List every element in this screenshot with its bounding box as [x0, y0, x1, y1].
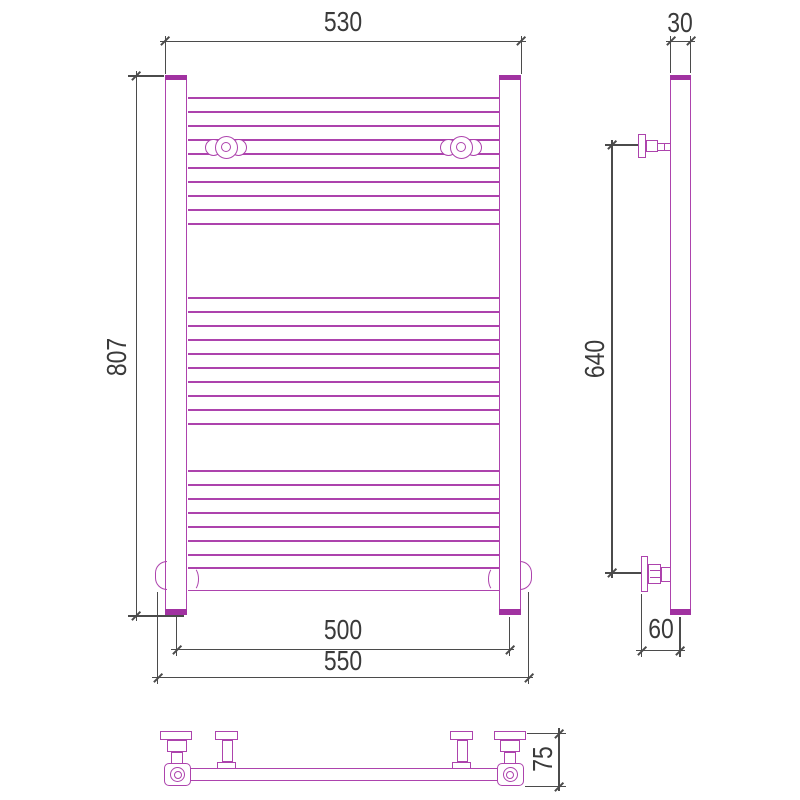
radiator-rung: [188, 540, 499, 542]
plan-bracket-stem: [222, 740, 233, 762]
radiator-rung: [188, 167, 499, 169]
radiator-rung: [188, 111, 499, 113]
right-post-bottom-cap: [499, 609, 521, 615]
extension-line: [528, 592, 529, 684]
dim-label-60: 60: [636, 614, 685, 644]
dimension-line: [136, 71, 137, 621]
wall-bracket-hole-icon: [221, 142, 231, 152]
radiator-rung: [188, 297, 499, 299]
radiator-rung: [188, 223, 499, 225]
radiator-rung: [188, 395, 499, 397]
radiator-rung: [188, 181, 499, 183]
drawing-canvas: 530 807 500 550 30: [0, 0, 800, 800]
plan-bracket-cap: [160, 731, 192, 740]
left-post: [165, 75, 187, 615]
dim-label-500: 500: [310, 615, 376, 645]
upper-bracket-body: [646, 140, 658, 152]
dimension-line: [152, 677, 533, 678]
collector-inner-cap-left: [186, 567, 199, 591]
lower-bracket-flange: [641, 556, 648, 592]
plan-bracket-mid: [500, 740, 520, 752]
radiator-rung: [188, 470, 499, 472]
right-post-top-cap: [499, 75, 521, 80]
left-post-bottom-cap: [165, 609, 187, 615]
lower-bracket-hex-nut: [648, 564, 661, 584]
dim-label-75: 75: [528, 734, 558, 783]
radiator-rung: [188, 195, 499, 197]
left-post-top-cap: [165, 75, 187, 80]
radiator-rung: [188, 353, 499, 355]
upper-bracket-flange: [638, 134, 646, 158]
dim-label-640: 640: [580, 326, 610, 392]
radiator-rung: [188, 97, 499, 99]
dimension-line: [558, 728, 559, 791]
plan-bracket-cap: [494, 731, 526, 740]
plan-bracket-stem: [457, 740, 468, 762]
fitting-plug-icon: [174, 771, 182, 779]
plan-bracket-cap: [215, 731, 238, 740]
upper-bracket-neck-end: [664, 143, 666, 152]
wall-bracket-hole-icon: [456, 142, 466, 152]
dimension-line: [160, 41, 526, 42]
side-tube-top-cap: [670, 75, 691, 80]
radiator-rung: [188, 409, 499, 411]
radiator-rung: [188, 526, 499, 528]
plan-tube-bottom-line: [191, 780, 497, 782]
plan-bracket-stem: [171, 752, 183, 764]
dim-label-550: 550: [310, 646, 376, 676]
plan-bracket-foot: [217, 762, 236, 769]
collector-top-line: [188, 567, 499, 569]
hex-facet-line: [650, 577, 660, 578]
fitting-plug-icon: [506, 771, 514, 779]
radiator-rung: [188, 209, 499, 211]
radiator-rung: [188, 339, 499, 341]
lower-bracket-neck: [661, 567, 671, 583]
collector-inner-cap-right: [488, 567, 501, 591]
radiator-rung: [188, 381, 499, 383]
collector-outer-cap-right: [520, 561, 532, 590]
collector-outer-cap-left: [155, 561, 167, 590]
radiator-rung: [188, 125, 499, 127]
plan-bracket-foot: [452, 762, 471, 769]
radiator-rung: [188, 311, 499, 313]
collector-bottom-line: [188, 590, 499, 592]
plan-bracket-stem: [504, 752, 516, 764]
radiator-rung: [188, 367, 499, 369]
radiator-rung: [188, 554, 499, 556]
dim-label-807: 807: [102, 324, 132, 390]
radiator-rung: [188, 498, 499, 500]
extension-line: [157, 592, 158, 684]
radiator-rung: [188, 423, 499, 425]
dim-label-30: 30: [655, 8, 704, 38]
dimension-line: [611, 140, 612, 578]
plan-bracket-cap: [450, 731, 473, 740]
hex-facet-line: [650, 570, 660, 571]
radiator-rung: [188, 512, 499, 514]
plan-bracket-mid: [167, 740, 187, 752]
radiator-rung: [188, 484, 499, 486]
radiator-rung: [188, 325, 499, 327]
dim-label-530: 530: [310, 7, 376, 37]
side-tube: [670, 75, 691, 615]
right-post: [499, 75, 521, 615]
